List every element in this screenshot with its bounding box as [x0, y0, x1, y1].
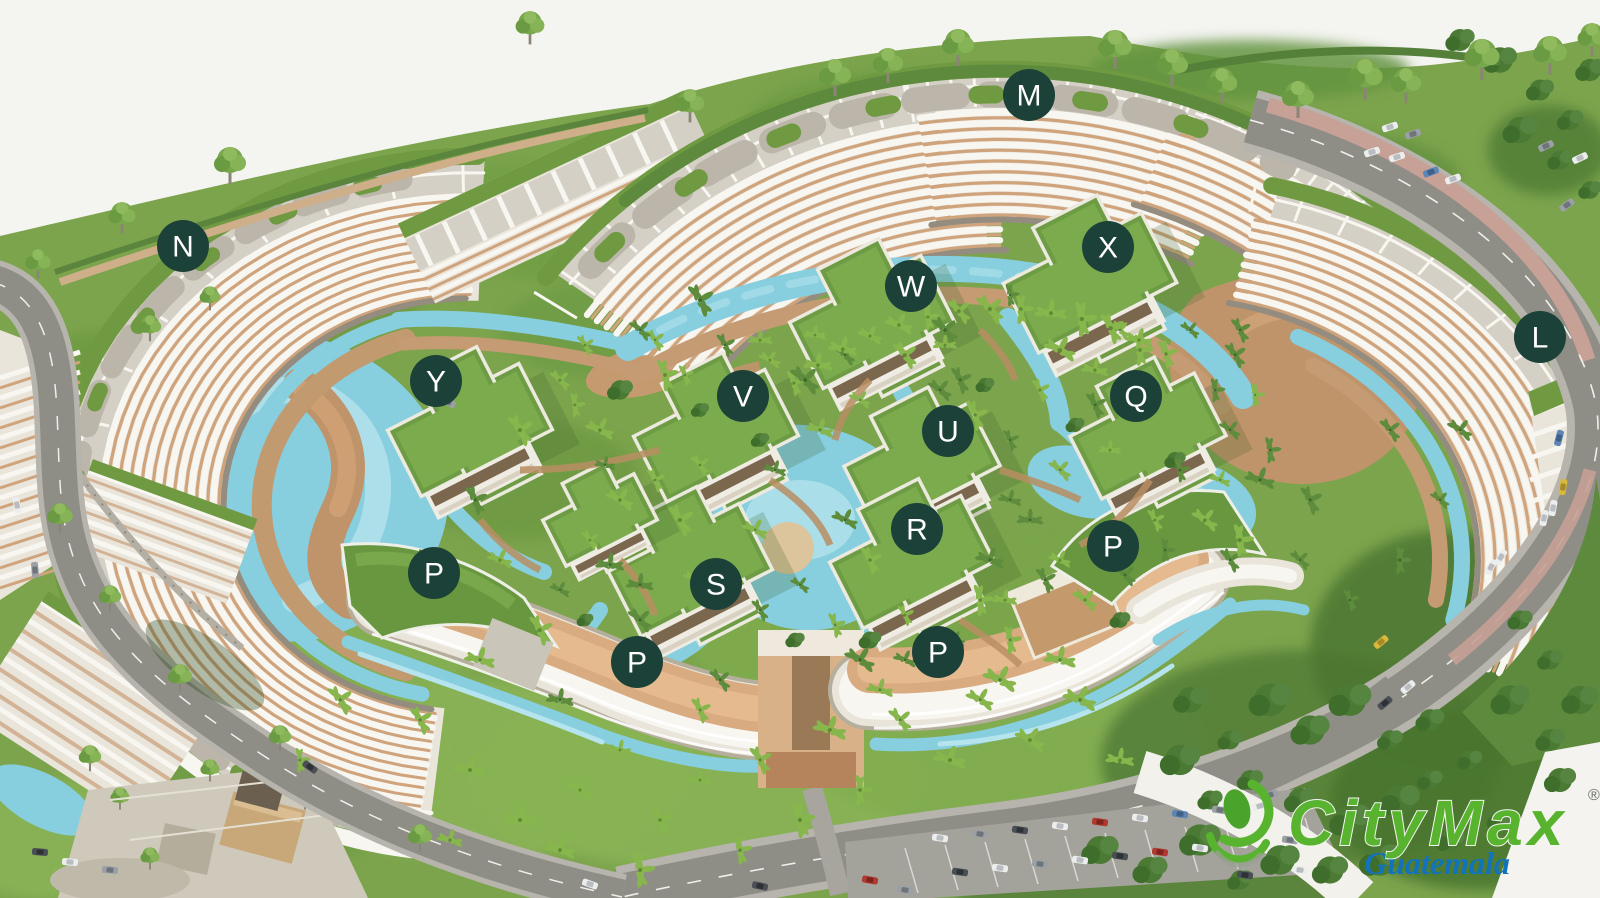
svg-text:M: M	[1017, 80, 1042, 113]
svg-text:P: P	[424, 558, 444, 591]
svg-text:P: P	[928, 637, 948, 670]
svg-text:Q: Q	[1124, 381, 1147, 414]
svg-text:R: R	[906, 514, 928, 547]
svg-text:X: X	[1098, 232, 1118, 265]
svg-text:®: ®	[1588, 787, 1600, 804]
svg-text:Guatemala: Guatemala	[1364, 845, 1510, 881]
svg-text:P: P	[1103, 531, 1123, 564]
svg-text:P: P	[627, 647, 647, 680]
svg-text:Y: Y	[426, 366, 446, 399]
svg-text:W: W	[897, 271, 926, 304]
svg-text:V: V	[733, 381, 753, 414]
svg-text:U: U	[937, 416, 959, 449]
svg-text:N: N	[172, 231, 194, 264]
svg-text:S: S	[706, 569, 726, 602]
svg-text:L: L	[1532, 322, 1549, 355]
